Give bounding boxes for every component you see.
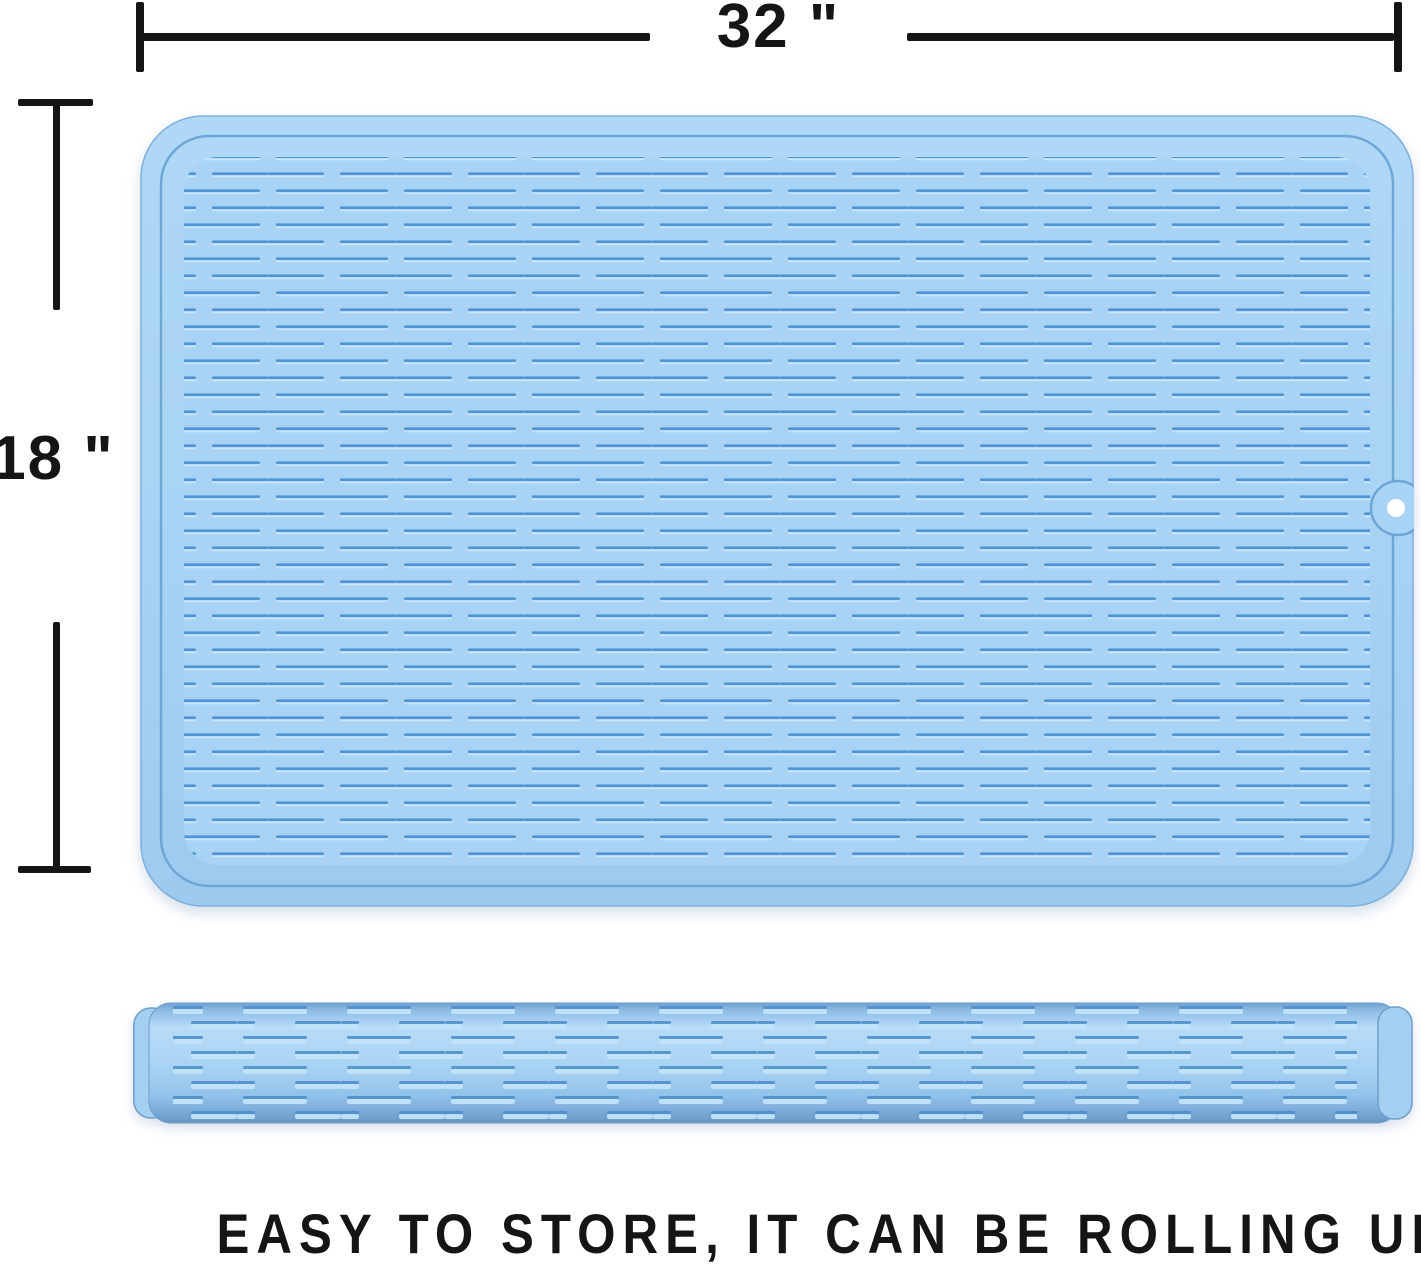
height-dimension-lower-line (53, 622, 60, 868)
roll-ridge-texture (173, 1005, 1357, 1121)
hang-hole-icon (1387, 499, 1405, 517)
mat-drain-ridges (184, 157, 1370, 865)
dish-mat-rolled-illustration (133, 1002, 1413, 1124)
height-dimension-label: 18 " (0, 428, 120, 490)
dish-mat-flat-illustration (140, 115, 1414, 907)
caption-text: EASY TO STORE, IT CAN BE ROLLING UP (216, 1206, 1337, 1262)
width-dimension-right-tick (1394, 2, 1402, 72)
product-dimension-image: 32 " 18 " (0, 0, 1421, 1276)
width-dimension-label: 32 " (650, 0, 907, 58)
height-dimension-upper-line (53, 104, 60, 310)
width-dimension-right-line (907, 33, 1394, 41)
width-dimension-left-line (142, 33, 650, 41)
height-dimension-bottom-tick (18, 866, 91, 873)
roll-right-rim (1378, 1007, 1412, 1119)
